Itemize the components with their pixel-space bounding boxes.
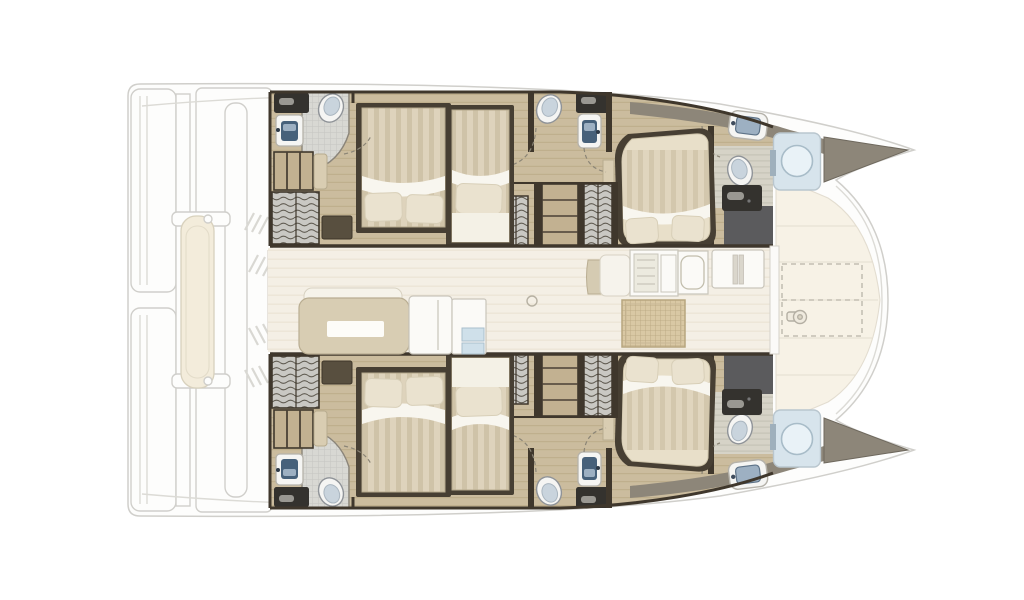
deck-plan-canvas [0,0,1024,600]
floor-hatch [622,300,685,347]
faucet-icon [596,130,600,134]
swim-platform-top [131,89,176,292]
shelf-unit [542,184,578,246]
cabinet-handle [581,97,596,104]
forward-bulkhead [770,246,779,354]
galley-stove-unit [630,250,678,296]
cabinet-handle [727,192,744,200]
fridge-handle [739,255,744,284]
pillow [455,183,502,215]
aft-vanity-cabinet [274,93,309,113]
shower-door-bar [770,150,776,176]
pillow [671,215,704,242]
bench-seat-small [314,154,327,189]
pillow [406,194,444,223]
aft-double-bed [356,103,451,233]
cabinet-handle [279,98,294,105]
fridge-handle [733,255,738,284]
duvet-stripes [620,150,712,218]
closet-wall [578,183,584,246]
storage-cabinet [409,296,452,354]
deck-plan-svg [0,0,1024,600]
mid-sink-icon [578,114,601,148]
saloon-corridor [268,246,779,354]
glass-front-cabinet [452,299,486,354]
forward-vanity-cabinet [722,185,762,211]
davit-eye-top [204,215,212,223]
pouf-step [322,216,352,239]
aft-sink-icon [276,115,303,146]
shower-tray-icon [782,146,813,177]
bench-seat [600,255,630,296]
wardrobe-shelves [274,152,313,190]
mid-berth-bed [446,105,514,247]
pillow [365,192,403,221]
closet-wall [612,183,618,246]
cockpit-post [225,103,247,497]
galley-sink-unit [678,251,708,294]
hanging-locker-aft [272,192,319,244]
forward-shower-floor [724,206,773,246]
faucet-icon [276,128,280,132]
pillow [625,217,659,244]
sofa-seam [327,321,384,337]
sheet-foot [452,213,509,242]
swim-platform-bottom [131,308,176,511]
fridge [712,250,764,288]
windlass-icon [787,311,807,324]
bath-wall [606,92,612,152]
island-double-bed [615,128,716,247]
closet-wall [534,183,542,246]
davit-eye-bottom [204,377,212,385]
sofa [299,288,409,354]
